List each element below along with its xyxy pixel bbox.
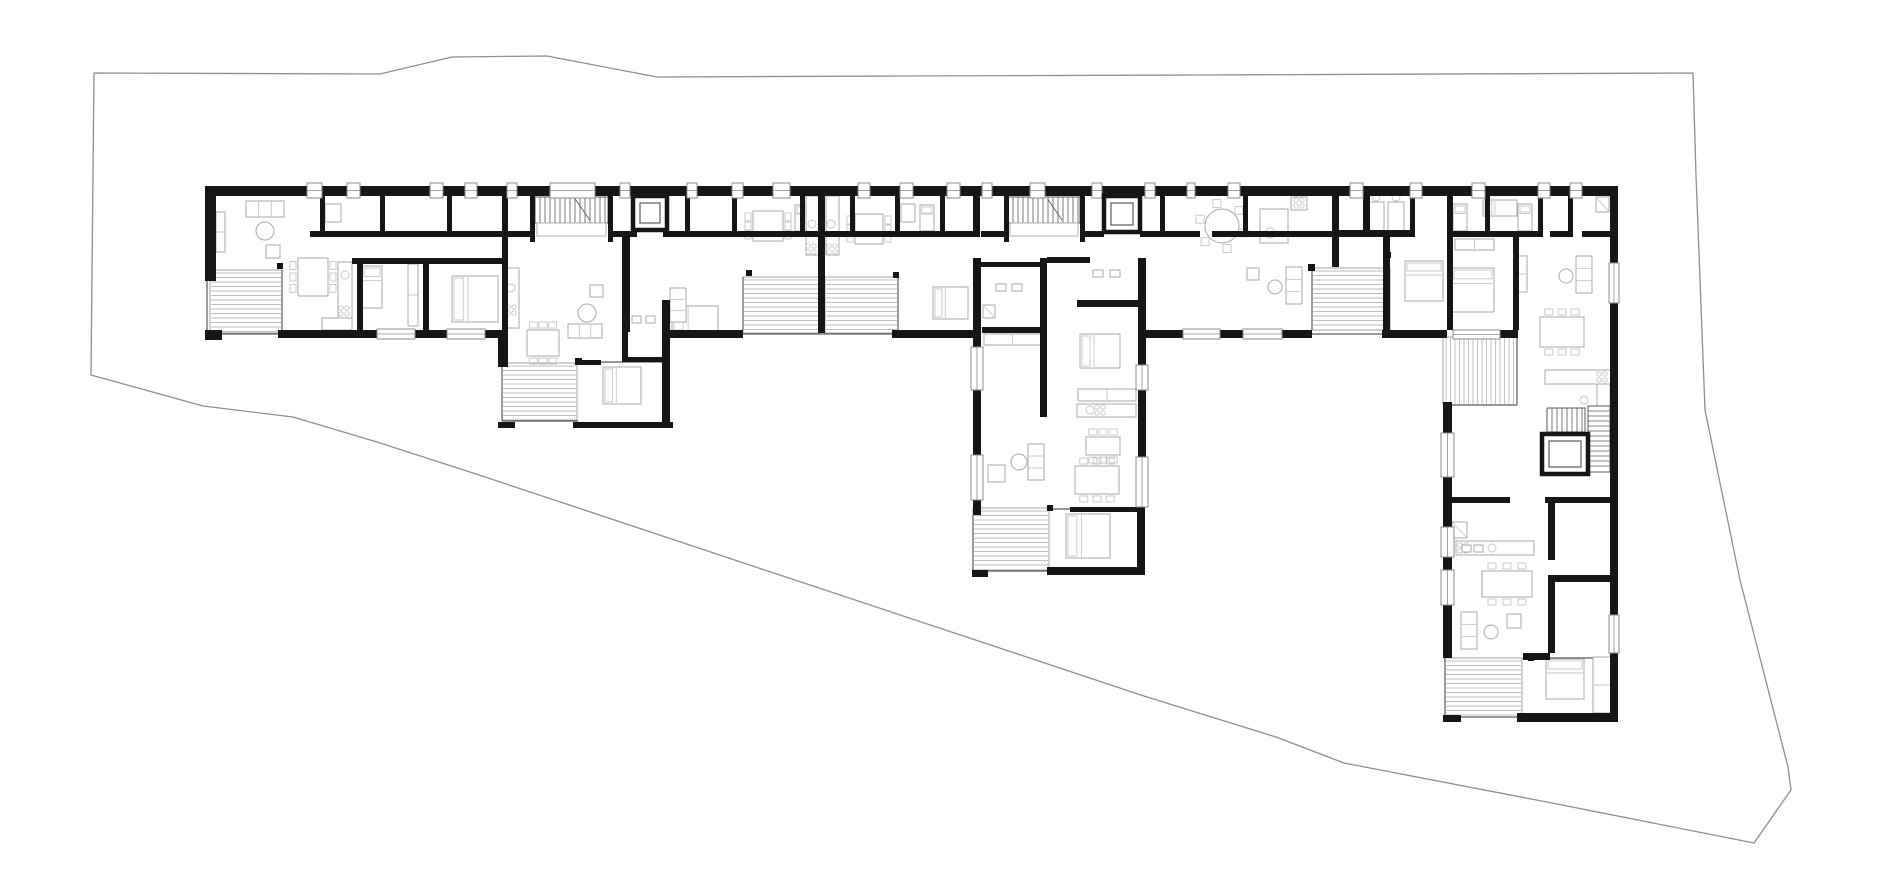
sofa-body — [568, 324, 602, 338]
table-top — [1075, 466, 1119, 494]
wall-segment — [447, 196, 452, 237]
wall-segment — [973, 196, 980, 237]
wall-segment — [1047, 257, 1090, 263]
bed-frame — [362, 266, 382, 308]
chair — [290, 284, 296, 292]
bed-frame — [1405, 261, 1443, 301]
bed-frame — [452, 276, 498, 322]
wall-segment — [622, 357, 663, 362]
chair — [1488, 599, 1496, 605]
chair — [1503, 563, 1511, 569]
floor-plan-page — [0, 0, 1880, 883]
chair — [745, 213, 751, 221]
chair — [1109, 429, 1117, 435]
column-post — [1528, 655, 1534, 661]
wall-segment — [1500, 330, 1518, 338]
wall-segment — [1610, 186, 1618, 267]
wardrobe — [1593, 657, 1611, 713]
wall-segment — [573, 422, 673, 428]
bath-fixture — [632, 316, 641, 323]
sofa — [1576, 256, 1592, 293]
terrace-deck — [502, 363, 577, 420]
column-post — [1047, 505, 1053, 511]
wall-segment — [1145, 330, 1183, 338]
elevator-walls — [633, 196, 667, 230]
bed — [603, 367, 641, 404]
wall-segment — [1443, 557, 1452, 570]
bed — [362, 266, 382, 308]
column-post — [893, 272, 899, 278]
bath-fixture — [996, 284, 1006, 291]
chair — [1518, 599, 1526, 605]
terrace-deck — [973, 508, 1049, 570]
chair — [1196, 215, 1204, 223]
side-table — [1247, 268, 1259, 280]
wardrobe — [216, 212, 225, 252]
bath-fixture — [646, 316, 655, 323]
chair — [549, 322, 557, 328]
desk-top — [1368, 202, 1384, 232]
wall-segment — [732, 196, 737, 237]
chair — [1106, 496, 1114, 502]
chair — [330, 284, 336, 292]
stair-outline — [1008, 197, 1080, 223]
wall-segment — [1447, 196, 1453, 330]
desk — [1388, 193, 1404, 232]
column-post — [1308, 264, 1315, 271]
staircase — [1588, 406, 1610, 472]
dining-table — [527, 322, 559, 364]
bed — [1453, 204, 1467, 231]
bath-fixture — [1474, 545, 1483, 552]
wall-segment — [1517, 713, 1618, 722]
wall-segment — [622, 300, 628, 360]
bath-fixture — [1110, 270, 1120, 277]
wall-segment — [205, 186, 216, 281]
wall-segment — [1410, 196, 1415, 237]
round-table-top — [256, 222, 274, 240]
wall-segment — [1513, 231, 1519, 330]
wall-segment — [818, 196, 825, 333]
chair — [1099, 429, 1107, 435]
wall-segment — [1538, 196, 1543, 237]
round-table — [1268, 280, 1282, 294]
column-post — [277, 263, 283, 269]
wall-segment — [850, 196, 855, 237]
chair — [1558, 309, 1566, 315]
wall-segment — [981, 231, 1008, 237]
wall-segment — [1443, 715, 1461, 722]
chair — [1201, 238, 1209, 246]
bath-fixture — [1462, 545, 1471, 552]
chair — [330, 262, 336, 270]
chair — [1223, 244, 1231, 252]
chair — [290, 262, 296, 270]
stair-outline — [535, 197, 608, 223]
elevator-shaft — [1104, 196, 1140, 232]
wall-segment — [973, 258, 981, 347]
bed — [1066, 514, 1110, 558]
round-table-top — [1268, 280, 1282, 294]
sofa-body — [1286, 267, 1302, 304]
wall-segment — [415, 330, 447, 338]
chair — [1571, 349, 1579, 355]
kitchen-counter — [1291, 197, 1307, 210]
chair — [1545, 309, 1553, 315]
stair-landing — [537, 223, 606, 236]
bath-fixture — [1012, 284, 1022, 291]
wall-segment — [1363, 196, 1370, 237]
wall-segment — [1282, 330, 1312, 338]
chair — [1518, 563, 1526, 569]
wall-segment — [423, 260, 429, 332]
wall-segment — [310, 231, 535, 237]
round-table-top — [1484, 625, 1498, 639]
chair — [1089, 429, 1097, 435]
wall-segment — [895, 196, 900, 237]
table-top — [527, 330, 559, 356]
sofa — [670, 288, 686, 322]
bed — [1405, 261, 1443, 301]
round-table-top — [1011, 454, 1027, 470]
sofa-body — [670, 288, 686, 322]
wall-segment — [1160, 196, 1165, 237]
side-table — [266, 245, 280, 258]
sink — [1580, 396, 1588, 404]
chair — [1213, 200, 1221, 208]
side-table — [901, 204, 915, 222]
kitchen-counter — [1545, 370, 1611, 384]
bed — [933, 287, 968, 319]
elevator-walls — [1104, 196, 1140, 232]
bed — [1080, 334, 1120, 368]
side-table — [590, 285, 603, 297]
wall-segment — [1610, 301, 1618, 617]
wall-segment — [485, 330, 500, 338]
wardrobe — [408, 264, 418, 326]
wall-segment — [1220, 330, 1243, 338]
wall-segment — [800, 196, 805, 237]
terrace-deck — [210, 270, 282, 333]
bed — [920, 205, 934, 231]
wall-segment — [1548, 503, 1555, 560]
wall-segment — [1004, 196, 1009, 242]
sofa — [1028, 444, 1044, 480]
wall-segment — [1332, 196, 1339, 267]
round-table — [1484, 625, 1498, 639]
stair-outline — [1547, 408, 1585, 432]
wall-segment — [1610, 651, 1618, 722]
wall-segment — [1485, 196, 1490, 237]
wall-segment — [1333, 230, 1413, 237]
kitchen-counter — [322, 318, 352, 330]
terrace-deck — [743, 277, 820, 333]
wall-segment — [667, 330, 743, 338]
site-boundary — [91, 56, 1791, 843]
wall-segment — [1523, 653, 1550, 660]
wall-segment — [498, 330, 505, 367]
terrace-deck — [825, 277, 898, 333]
side-table — [988, 465, 1005, 482]
wall-segment — [1582, 231, 1610, 237]
wardrobe — [1455, 239, 1494, 250]
chair — [1503, 599, 1511, 605]
wall-segment — [1548, 575, 1555, 653]
bed-frame — [1452, 268, 1494, 312]
round-table-top — [1559, 269, 1573, 283]
chair — [1093, 496, 1101, 502]
wall-segment — [1138, 390, 1146, 457]
wall-segment — [1443, 605, 1452, 658]
round-table — [256, 222, 274, 240]
side-table — [1507, 614, 1521, 628]
round-table — [578, 304, 596, 322]
shower — [1596, 197, 1609, 212]
chair — [1080, 458, 1088, 464]
table-top — [1086, 437, 1120, 455]
sofa — [246, 201, 284, 217]
wall-segment — [1453, 231, 1538, 237]
wall-segment — [1383, 237, 1390, 330]
bed-frame — [1066, 514, 1110, 558]
chair — [745, 222, 751, 230]
wall-segment — [973, 500, 981, 515]
sofa-body — [1461, 612, 1477, 649]
wall-segment — [685, 196, 690, 237]
chair — [529, 322, 537, 328]
sofa — [1286, 267, 1302, 304]
column-post — [1385, 252, 1391, 258]
chair — [785, 213, 791, 221]
chair — [785, 222, 791, 230]
desk-top — [1388, 202, 1404, 232]
round-table — [1196, 200, 1248, 253]
wall-segment — [1550, 231, 1570, 237]
wall-segment — [1070, 507, 1143, 512]
wall-segment — [205, 330, 222, 340]
table-top — [1540, 317, 1584, 347]
chair — [1488, 563, 1496, 569]
floor-plan-drawing — [0, 0, 1880, 883]
wall-segment — [1080, 196, 1085, 242]
chair — [330, 273, 336, 281]
dining-table — [1482, 563, 1532, 605]
wall-segment — [972, 570, 988, 577]
bed-frame — [1546, 659, 1584, 699]
column-post — [575, 358, 582, 365]
staircase — [535, 197, 608, 236]
chair — [1235, 206, 1243, 214]
wall-segment — [1138, 258, 1146, 365]
wall-segment — [892, 330, 973, 338]
wall-segment — [982, 327, 1043, 333]
kitchen-counter — [1260, 209, 1288, 243]
sofa — [568, 324, 602, 338]
desk — [1368, 193, 1384, 232]
bath-fixture — [1093, 270, 1103, 277]
wall-segment — [1040, 258, 1047, 417]
terrace-outline — [1445, 658, 1522, 717]
bed — [1546, 659, 1584, 699]
sofa-body — [1028, 444, 1044, 480]
staircase — [1547, 408, 1585, 432]
wall-segment — [1568, 196, 1573, 237]
wall-segment — [1047, 567, 1145, 575]
table-top — [1482, 571, 1532, 597]
sofa — [1461, 612, 1477, 649]
table-top — [298, 258, 328, 296]
terrace-outline — [502, 363, 577, 420]
terrace-deck — [1445, 658, 1522, 717]
dining-table — [1075, 458, 1119, 502]
round-table — [1011, 454, 1027, 470]
column-post — [746, 270, 752, 276]
side-table — [325, 204, 341, 222]
wall-segment — [662, 300, 670, 428]
bed-frame — [1080, 334, 1120, 368]
wall-segment — [1137, 507, 1145, 575]
chair — [1558, 349, 1566, 355]
wall-segment — [1553, 575, 1617, 582]
wall-segment — [1545, 497, 1612, 503]
wall-segment — [380, 196, 385, 237]
wall-segment — [1077, 300, 1138, 307]
elevator-shaft — [633, 196, 667, 230]
wall-segment — [1243, 196, 1248, 237]
bed-frame — [603, 367, 641, 404]
site-boundary-line — [91, 56, 1791, 843]
terrace-outline — [1443, 337, 1517, 405]
dining-table — [1086, 429, 1120, 463]
bed — [1452, 268, 1494, 312]
chair — [539, 322, 547, 328]
wall-segment — [1443, 402, 1452, 433]
wall-segment — [1450, 497, 1510, 503]
wall-segment — [608, 196, 613, 242]
bed-frame — [933, 287, 968, 319]
terrace-deck — [1443, 337, 1517, 405]
round-table-top — [1205, 209, 1239, 243]
terrace-deck — [1312, 268, 1390, 330]
bed — [1518, 204, 1532, 231]
round-table-top — [578, 304, 596, 322]
wall-segment — [357, 260, 363, 332]
chair — [290, 273, 296, 281]
wall-segment — [320, 196, 325, 237]
chair — [1571, 309, 1579, 315]
staircase — [1008, 197, 1080, 236]
wall-segment — [940, 196, 945, 237]
wardrobe — [1078, 389, 1136, 401]
chair — [885, 216, 891, 224]
wall-segment — [973, 390, 981, 455]
dining-table — [290, 258, 336, 296]
wardrobe — [984, 334, 1041, 345]
chair — [1545, 349, 1553, 355]
elevator-shaft — [1542, 434, 1588, 474]
chair — [1080, 496, 1088, 502]
shower — [983, 305, 995, 318]
sofa-body — [246, 201, 284, 217]
stair-landing — [1010, 223, 1078, 236]
dining-table — [1540, 309, 1584, 355]
wall-segment — [530, 196, 535, 242]
wall-segment — [498, 422, 515, 428]
table-top — [855, 214, 883, 244]
wall-segment — [1382, 330, 1447, 338]
wall-segment — [981, 262, 1041, 267]
bed — [452, 276, 498, 322]
wall-segment — [1140, 231, 1200, 237]
wall-segment — [1212, 231, 1332, 237]
sofa-body — [1576, 256, 1592, 293]
wardrobe — [1518, 256, 1527, 292]
terrace-outline — [210, 270, 282, 333]
round-table — [1559, 269, 1573, 283]
